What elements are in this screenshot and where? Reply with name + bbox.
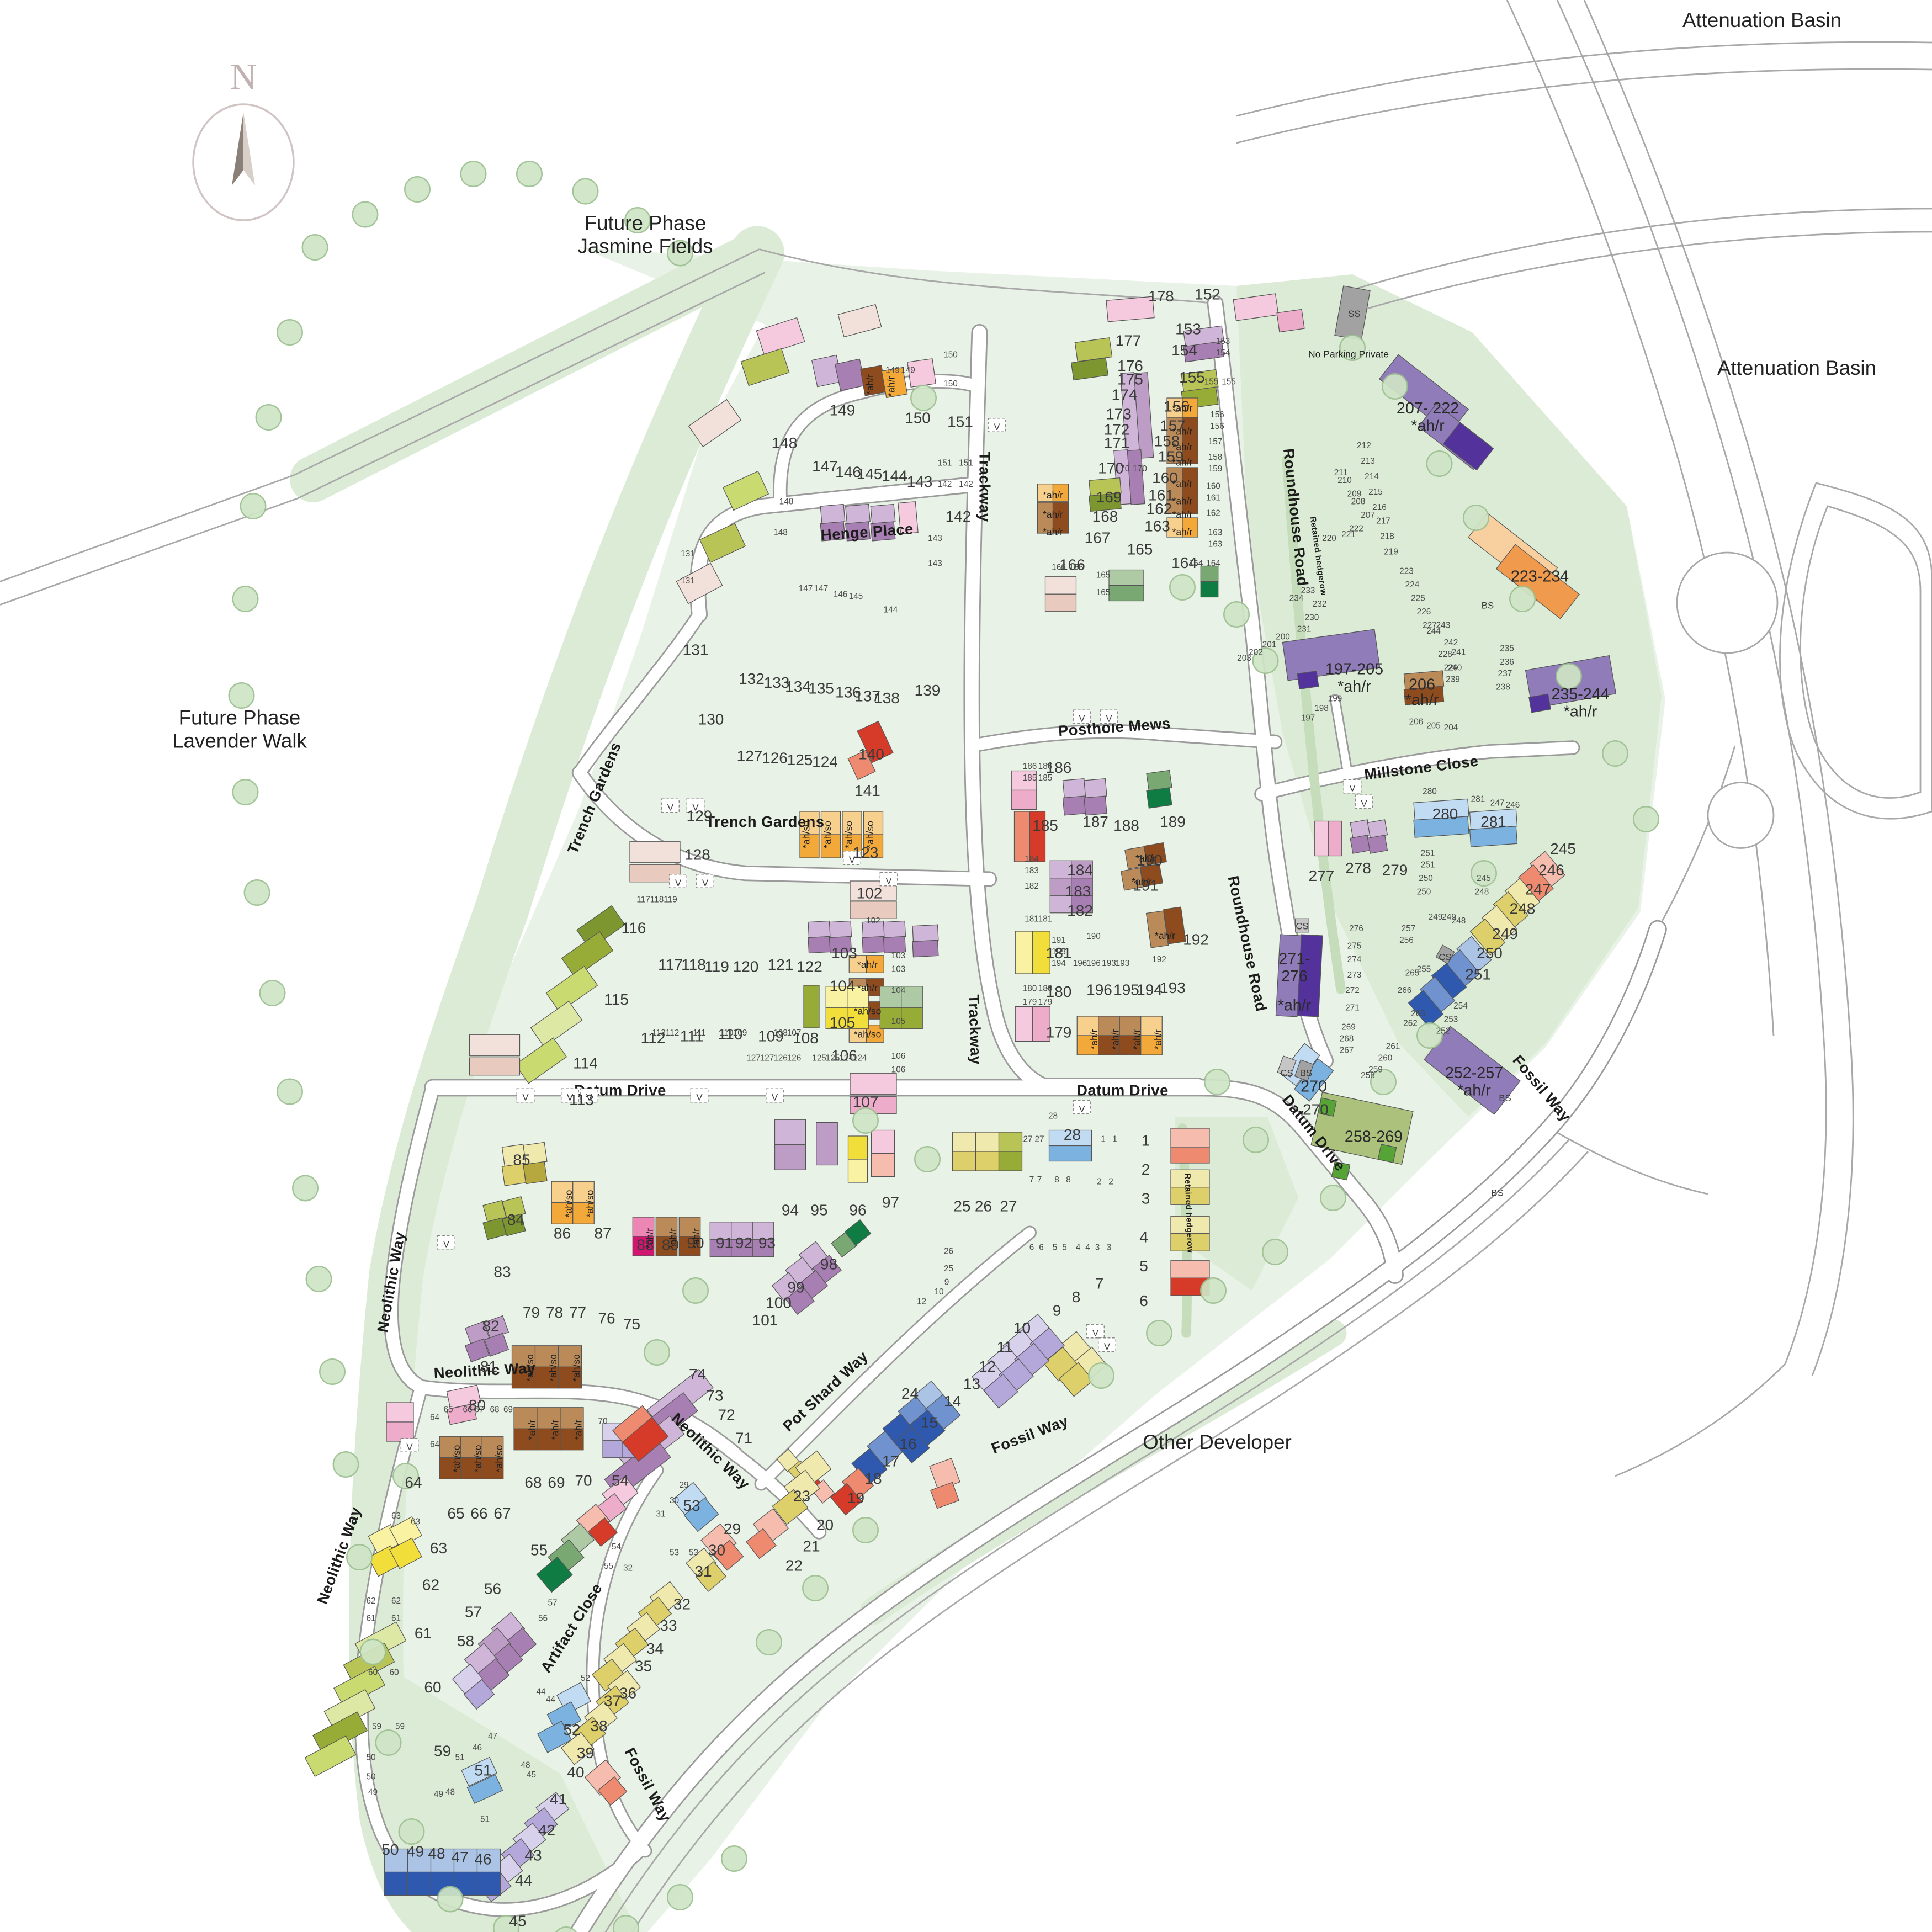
affordable-housing-label: *ah/r xyxy=(857,983,878,994)
building-block xyxy=(912,940,938,957)
tree-icon xyxy=(277,1079,302,1105)
parking-label-238: 238 xyxy=(1496,683,1510,692)
parking-label-271: 271 xyxy=(1345,1004,1360,1013)
parking-label-247: 247 xyxy=(1490,799,1505,808)
parking-label-250: 250 xyxy=(1417,888,1431,897)
plot-label-21: 21 xyxy=(803,1538,820,1555)
parking-label-103: 103 xyxy=(891,965,906,974)
parking-label-49: 49 xyxy=(434,1790,443,1799)
building-block xyxy=(953,1151,976,1171)
plot-label-34: 34 xyxy=(646,1640,664,1657)
plot-label-128: 128 xyxy=(684,846,710,863)
parking-label-60: 60 xyxy=(389,1668,399,1678)
parking-label-164: 164 xyxy=(1206,559,1220,569)
building-range-label: 252-257 xyxy=(1445,1064,1503,1082)
plot-label-32: 32 xyxy=(673,1596,691,1613)
plot-label-247: 247 xyxy=(1525,881,1551,898)
plot-label-95: 95 xyxy=(810,1202,827,1219)
parking-label-57: 57 xyxy=(548,1599,557,1608)
plot-label-92: 92 xyxy=(735,1234,752,1251)
plot-label-124: 124 xyxy=(812,753,838,771)
building-block xyxy=(1045,577,1076,595)
plot-label-178: 178 xyxy=(1148,288,1174,305)
parking-label-166: 166 xyxy=(1069,563,1084,572)
visitor-space-label: V xyxy=(1349,783,1356,794)
plot-label-70: 70 xyxy=(575,1472,592,1489)
tree-icon xyxy=(241,493,266,519)
affordable-housing-label: *ah/r xyxy=(691,1228,702,1249)
parking-label-109: 109 xyxy=(733,1028,747,1038)
parking-label-281: 281 xyxy=(1471,795,1485,804)
building-block xyxy=(1277,310,1304,332)
plot-label-184: 184 xyxy=(1067,862,1093,879)
parking-label-201: 201 xyxy=(1262,640,1277,650)
building-block xyxy=(1171,1128,1209,1148)
parking-label-153: 153 xyxy=(1216,337,1230,346)
parking-label-51: 51 xyxy=(480,1815,490,1824)
plot-label-3: 3 xyxy=(1142,1190,1150,1207)
plot-label-135: 135 xyxy=(808,680,834,697)
plot-label-182: 182 xyxy=(1067,902,1093,919)
parking-label-113: 113 xyxy=(652,1028,666,1038)
north-arrow-letter: N xyxy=(230,57,257,97)
parking-label-214: 214 xyxy=(1365,472,1379,481)
plot-label-79: 79 xyxy=(523,1304,540,1321)
plot-label-10: 10 xyxy=(1013,1319,1031,1336)
plot-label-246: 246 xyxy=(1538,862,1564,879)
plot-label-15: 15 xyxy=(921,1414,938,1431)
building-block xyxy=(1529,694,1551,713)
parking-label-44: 44 xyxy=(546,1695,556,1705)
parking-label-213: 213 xyxy=(1361,457,1375,466)
tree-icon xyxy=(293,1176,318,1201)
parking-label-54: 54 xyxy=(612,1542,622,1552)
plot-label-61: 61 xyxy=(415,1625,432,1642)
parking-label-157: 157 xyxy=(1208,437,1223,447)
plot-label-14: 14 xyxy=(944,1393,961,1410)
visitor-space-label: V xyxy=(675,878,682,888)
parking-label-231: 231 xyxy=(1297,625,1312,634)
tree-icon xyxy=(233,779,258,805)
parking-label-163: 163 xyxy=(1208,540,1223,549)
building-block xyxy=(872,1154,895,1177)
parking-label-269: 269 xyxy=(1341,1023,1356,1032)
building-block xyxy=(1315,821,1329,856)
parking-label-26: 26 xyxy=(944,1247,953,1256)
parking-label-3: 3 xyxy=(1107,1243,1112,1252)
plot-label-55: 55 xyxy=(530,1542,548,1559)
building-block xyxy=(1328,821,1342,856)
parking-label-259: 259 xyxy=(1368,1065,1383,1075)
affordable-housing-label: *ah/r xyxy=(644,1228,655,1249)
plot-label-113: 113 xyxy=(569,1091,594,1108)
parking-label-205: 205 xyxy=(1426,721,1441,731)
parking-label-53: 53 xyxy=(670,1548,679,1558)
parking-label-62: 62 xyxy=(366,1596,375,1606)
parking-label-111: 111 xyxy=(693,1028,705,1038)
tree-icon xyxy=(306,1266,332,1292)
affordable-housing-label: *ah/so xyxy=(451,1445,462,1473)
parking-label-2: 2 xyxy=(1108,1177,1113,1187)
parking-label-118: 118 xyxy=(650,895,664,905)
parking-label-61: 61 xyxy=(391,1614,401,1623)
plot-label-189: 189 xyxy=(1160,813,1186,830)
affordable-housing-label: *ah/r xyxy=(1089,1029,1100,1049)
parking-label-61: 61 xyxy=(366,1614,375,1623)
parking-label-148: 148 xyxy=(779,497,794,507)
parking-label-170: 170 xyxy=(1116,464,1130,474)
parking-label-62: 62 xyxy=(391,1596,401,1606)
plot-label-155: 155 xyxy=(1179,369,1205,386)
parking-label-68: 68 xyxy=(490,1405,499,1415)
building-block xyxy=(1049,1146,1092,1161)
parking-label-145: 145 xyxy=(849,592,863,601)
building-block xyxy=(884,921,906,938)
plot-label-280: 280 xyxy=(1432,805,1458,822)
parking-label-260: 260 xyxy=(1378,1054,1393,1063)
parking-label-165: 165 xyxy=(1096,588,1111,597)
parking-label-46: 46 xyxy=(473,1743,482,1753)
building-block xyxy=(1297,671,1319,689)
affordable-housing-label: *ah/r xyxy=(1131,1029,1142,1049)
parking-label-208: 208 xyxy=(1351,497,1366,507)
parking-label-52: 52 xyxy=(581,1674,590,1683)
building-range-label: *ah/r xyxy=(1457,1082,1491,1100)
plot-label-188: 188 xyxy=(1113,817,1139,834)
parking-label-44: 44 xyxy=(536,1687,546,1697)
building-block xyxy=(1171,1148,1209,1163)
building-block xyxy=(1015,1007,1033,1042)
tree-icon xyxy=(405,177,430,202)
tree-icon xyxy=(667,1885,693,1910)
title-label: Other Developer xyxy=(1143,1431,1292,1453)
parking-label-203: 203 xyxy=(1237,654,1251,663)
tree-icon xyxy=(1262,1239,1288,1265)
tree-icon xyxy=(644,1340,670,1365)
plot-label-16: 16 xyxy=(899,1435,916,1452)
affordable-housing-label: *ah/r xyxy=(1172,496,1193,507)
building-block xyxy=(846,504,871,523)
plot-label-163: 163 xyxy=(1144,518,1170,535)
plot-label-25: 25 xyxy=(953,1198,970,1215)
plot-label-116: 116 xyxy=(622,920,646,937)
building-block xyxy=(1109,586,1144,601)
plot-label-153: 153 xyxy=(1175,321,1201,338)
building-block xyxy=(999,1132,1022,1151)
plot-label-248: 248 xyxy=(1510,900,1536,917)
affordable-housing-label: *ah/so xyxy=(822,821,833,848)
parking-label-194: 194 xyxy=(1052,959,1066,968)
parking-label-204: 204 xyxy=(1444,723,1458,733)
parking-label-219: 219 xyxy=(1384,548,1398,557)
parking-label-280: 280 xyxy=(1423,787,1437,797)
tree-icon xyxy=(1633,806,1659,832)
plot-label-121: 121 xyxy=(768,956,794,973)
title-label: Future Phase xyxy=(585,212,707,235)
plot-label-38: 38 xyxy=(590,1717,607,1734)
parking-label-200: 200 xyxy=(1276,633,1290,642)
boundary-line xyxy=(1236,69,1932,143)
roundabout xyxy=(1708,783,1774,848)
tree-icon xyxy=(333,1452,359,1477)
building-block xyxy=(999,1151,1022,1171)
plot-label-146: 146 xyxy=(835,464,861,481)
parking-label-197: 197 xyxy=(1301,714,1315,723)
facility-marker-ss: SS xyxy=(1348,309,1360,319)
parking-label-230: 230 xyxy=(1305,613,1319,623)
parking-label-250: 250 xyxy=(1419,874,1433,883)
parking-label-107: 107 xyxy=(787,1028,802,1038)
affordable-housing-label: *ah/r xyxy=(667,1228,678,1249)
plot-label-18: 18 xyxy=(864,1470,882,1487)
plot-label-59: 59 xyxy=(434,1743,451,1760)
plot-label-144: 144 xyxy=(882,468,907,485)
plot-label-27: 27 xyxy=(1000,1198,1017,1215)
tree-icon xyxy=(1089,1363,1114,1388)
parking-label-6: 6 xyxy=(1029,1243,1034,1252)
tree-icon xyxy=(756,1630,782,1655)
parking-label-142: 142 xyxy=(938,480,952,489)
tree-icon xyxy=(911,385,936,411)
plot-label-149: 149 xyxy=(830,402,856,419)
parking-label-151: 151 xyxy=(959,459,973,468)
plot-label-74: 74 xyxy=(689,1366,706,1383)
facility-marker-bs: BS xyxy=(1499,1093,1511,1103)
parking-label-149: 149 xyxy=(885,366,900,375)
plot-label-64: 64 xyxy=(405,1474,422,1491)
parking-label-6: 6 xyxy=(1039,1243,1044,1252)
parking-label-181: 181 xyxy=(1038,915,1053,924)
plot-label-98: 98 xyxy=(820,1256,837,1273)
building-block xyxy=(408,1872,431,1896)
plot-label-122: 122 xyxy=(797,958,822,975)
parking-label-49: 49 xyxy=(368,1788,378,1797)
visitor-space-label: V xyxy=(702,878,709,888)
tree-icon xyxy=(1320,1185,1346,1211)
facility-marker-cs: CS xyxy=(1296,921,1308,932)
plot-label-97: 97 xyxy=(882,1194,899,1211)
boundary-line xyxy=(1615,1364,1785,1476)
plot-label-167: 167 xyxy=(1085,529,1111,546)
parking-label-53: 53 xyxy=(689,1548,698,1558)
parking-label-165: 165 xyxy=(1096,571,1111,580)
building-range-label: 197-205 xyxy=(1325,661,1383,678)
site-plan-page: NFuture PhaseJasmine FieldsAttenuation B… xyxy=(0,0,1932,1932)
plot-label-102: 102 xyxy=(857,885,883,902)
parking-label-226: 226 xyxy=(1417,607,1431,617)
plot-label-17: 17 xyxy=(882,1453,899,1470)
parking-label-142: 142 xyxy=(959,480,973,489)
parking-label-154: 154 xyxy=(1216,348,1230,358)
plot-label-279: 279 xyxy=(1382,862,1408,879)
parking-label-215: 215 xyxy=(1368,487,1383,497)
affordable-housing-label: *ah/r xyxy=(1172,527,1193,538)
affordable-housing-label: *ah/r xyxy=(1153,1029,1164,1049)
plot-label-87: 87 xyxy=(594,1225,611,1242)
plot-label-138: 138 xyxy=(874,689,900,707)
building-block xyxy=(630,841,680,863)
parking-label-106: 106 xyxy=(891,1052,906,1061)
visitor-space-label: V xyxy=(522,1092,529,1103)
building-block xyxy=(1147,788,1172,808)
parking-label-248: 248 xyxy=(1452,916,1466,926)
plot-label-143: 143 xyxy=(907,473,933,490)
plot-label-103: 103 xyxy=(831,944,857,962)
title-label: Future Phase xyxy=(179,707,301,729)
parking-label-63: 63 xyxy=(391,1511,401,1521)
plot-label-44: 44 xyxy=(515,1872,532,1889)
building-range-label: 207- 222 xyxy=(1397,400,1459,417)
tree-icon xyxy=(683,1278,708,1303)
plot-label-172: 172 xyxy=(1104,421,1130,438)
parking-label-246: 246 xyxy=(1506,800,1520,810)
parking-label-166: 166 xyxy=(1052,563,1066,572)
plot-label-249: 249 xyxy=(1492,925,1518,942)
building-block xyxy=(835,359,866,390)
plot-label-68: 68 xyxy=(524,1474,542,1491)
parking-label-143: 143 xyxy=(928,559,942,569)
building-block xyxy=(808,937,830,953)
parking-label-193: 193 xyxy=(1116,959,1130,968)
tree-icon xyxy=(1602,741,1628,766)
plot-label-152: 152 xyxy=(1195,286,1220,303)
plot-label-179: 179 xyxy=(1046,1024,1072,1041)
building-block xyxy=(1084,796,1107,815)
building-block xyxy=(1109,570,1144,586)
tree-icon xyxy=(573,179,598,204)
parking-label-102: 102 xyxy=(866,916,880,926)
boundary-line xyxy=(1352,209,1932,290)
visitor-space-label: V xyxy=(443,1239,450,1250)
plot-label-194: 194 xyxy=(1137,981,1163,999)
parking-label-193: 193 xyxy=(1102,959,1116,968)
tree-icon xyxy=(1201,1278,1226,1303)
plot-label-24: 24 xyxy=(901,1385,919,1402)
tree-icon xyxy=(353,202,378,227)
plot-label-130: 130 xyxy=(698,711,724,728)
plot-label-73: 73 xyxy=(706,1387,723,1404)
affordable-housing-label: *ah/r xyxy=(1043,509,1063,520)
building-range-label: *ah/r xyxy=(1411,417,1445,435)
plot-label-36: 36 xyxy=(619,1685,636,1702)
tree-icon xyxy=(376,1730,401,1755)
visitor-space-label: V xyxy=(1079,1104,1085,1114)
parking-label-60: 60 xyxy=(368,1668,378,1678)
plot-label-29: 29 xyxy=(724,1520,741,1537)
parking-label-69: 69 xyxy=(503,1405,513,1415)
parking-label-8: 8 xyxy=(1054,1175,1059,1185)
parking-label-251: 251 xyxy=(1421,861,1435,870)
parking-label-12: 12 xyxy=(917,1297,926,1307)
building-block xyxy=(850,1073,896,1095)
building-block xyxy=(884,937,906,953)
parking-label-108: 108 xyxy=(773,1028,788,1038)
parking-label-156: 156 xyxy=(1210,410,1224,420)
parking-label-66: 66 xyxy=(463,1405,472,1415)
tree-icon xyxy=(915,1147,940,1172)
parking-label-65: 65 xyxy=(443,1405,453,1415)
plot-label-85: 85 xyxy=(513,1151,530,1169)
affordable-housing-label: *ah/r xyxy=(1172,509,1193,520)
affordable-housing-label: *ah/so xyxy=(864,821,875,848)
parking-label-146: 146 xyxy=(834,590,848,599)
affordable-housing-label: *ah/r xyxy=(886,376,897,396)
plot-label-54: 54 xyxy=(612,1472,629,1489)
plot-label-118: 118 xyxy=(681,956,706,973)
parking-label-251: 251 xyxy=(1421,849,1435,858)
building-block xyxy=(477,1872,501,1896)
visitor-space-label: V xyxy=(1106,714,1112,724)
plot-label-127: 127 xyxy=(737,747,763,765)
parking-label-235: 235 xyxy=(1500,644,1514,654)
plot-label-126: 126 xyxy=(762,750,788,767)
affordable-housing-label: *ah/r xyxy=(1172,457,1193,468)
affordable-housing-label: *ah/so xyxy=(571,1354,582,1382)
visitor-space-label: V xyxy=(406,1442,413,1452)
tree-icon xyxy=(438,1887,463,1912)
plot-label-185: 185 xyxy=(1032,817,1058,834)
plot-label-65: 65 xyxy=(447,1505,464,1522)
building-block xyxy=(1063,779,1085,798)
plot-label-81: 81 xyxy=(480,1358,497,1375)
building-range-label: *ah/r xyxy=(1278,997,1312,1015)
plot-label-2: 2 xyxy=(1142,1161,1150,1178)
plot-label-56: 56 xyxy=(484,1580,501,1597)
plot-label-177: 177 xyxy=(1116,332,1142,349)
parking-label-29: 29 xyxy=(679,1480,688,1490)
building-block xyxy=(862,937,884,953)
plot-label-100: 100 xyxy=(766,1294,792,1312)
parking-label-147: 147 xyxy=(799,584,813,593)
plot-label-48: 48 xyxy=(428,1845,445,1862)
plot-label-270: 270 xyxy=(1303,1101,1329,1118)
building-block xyxy=(603,1440,622,1458)
building-block xyxy=(830,921,852,938)
building-range-label: 223-234 xyxy=(1511,568,1569,586)
parking-label-240: 240 xyxy=(1448,664,1462,673)
parking-label-198: 198 xyxy=(1314,704,1329,713)
plot-label-53: 53 xyxy=(683,1497,700,1514)
affordable-housing-label: *ah/so xyxy=(548,1354,559,1382)
plot-label-141: 141 xyxy=(854,782,880,799)
parking-label-245: 245 xyxy=(1477,874,1491,883)
plot-label-114: 114 xyxy=(573,1055,598,1072)
plot-label-83: 83 xyxy=(493,1264,511,1281)
plot-label-245: 245 xyxy=(1550,840,1576,857)
plot-label-277: 277 xyxy=(1309,867,1335,884)
parking-label-161: 161 xyxy=(1206,493,1220,503)
tree-icon xyxy=(517,161,542,187)
plot-label-47: 47 xyxy=(451,1849,468,1866)
boundary-line xyxy=(1236,42,1932,116)
parking-label-237: 237 xyxy=(1498,669,1512,678)
building-block xyxy=(804,985,819,1028)
plot-label-13: 13 xyxy=(963,1376,980,1393)
plot-label-162: 162 xyxy=(1147,500,1172,517)
building-block xyxy=(1201,582,1218,597)
building-block xyxy=(871,504,895,523)
affordable-housing-label: *ah/so xyxy=(524,1354,535,1382)
parking-label-4: 4 xyxy=(1085,1243,1090,1252)
parking-label-131: 131 xyxy=(681,576,695,586)
building-block xyxy=(953,1132,976,1151)
building-block xyxy=(1350,835,1370,853)
plot-label-7: 7 xyxy=(1095,1275,1104,1292)
building-block xyxy=(1063,796,1085,815)
title-label: Jasmine Fields xyxy=(577,235,713,258)
plot-label-23: 23 xyxy=(793,1488,810,1505)
parking-label-149: 149 xyxy=(901,366,915,375)
